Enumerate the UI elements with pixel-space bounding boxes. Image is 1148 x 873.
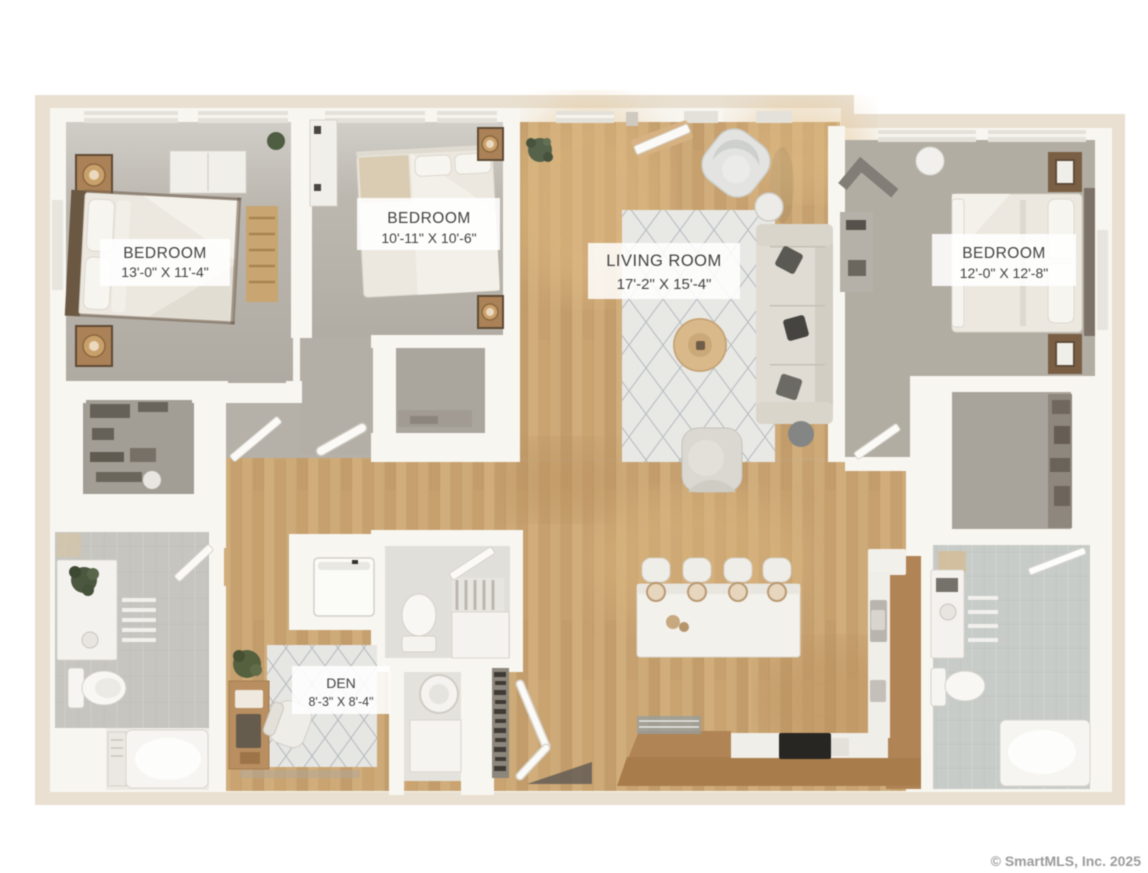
svg-text:12'-0" X 12'-8": 12'-0" X 12'-8" bbox=[960, 265, 1048, 281]
svg-text:DEN: DEN bbox=[326, 675, 356, 691]
svg-text:17'-2" X 15'-4": 17'-2" X 15'-4" bbox=[617, 276, 712, 293]
svg-text:13'-0" X 11'-4": 13'-0" X 11'-4" bbox=[121, 264, 208, 280]
svg-text:8'-3" X 8'-4": 8'-3" X 8'-4" bbox=[308, 695, 373, 709]
svg-text:LIVING ROOM: LIVING ROOM bbox=[606, 252, 722, 270]
svg-text:BEDROOM: BEDROOM bbox=[123, 245, 207, 262]
svg-text:BEDROOM: BEDROOM bbox=[387, 210, 471, 227]
svg-text:10'-11" X 10'-6": 10'-11" X 10'-6" bbox=[381, 230, 476, 246]
svg-text:BEDROOM: BEDROOM bbox=[962, 245, 1046, 262]
svg-text:© SmartMLS, Inc. 2025: © SmartMLS, Inc. 2025 bbox=[991, 853, 1142, 869]
